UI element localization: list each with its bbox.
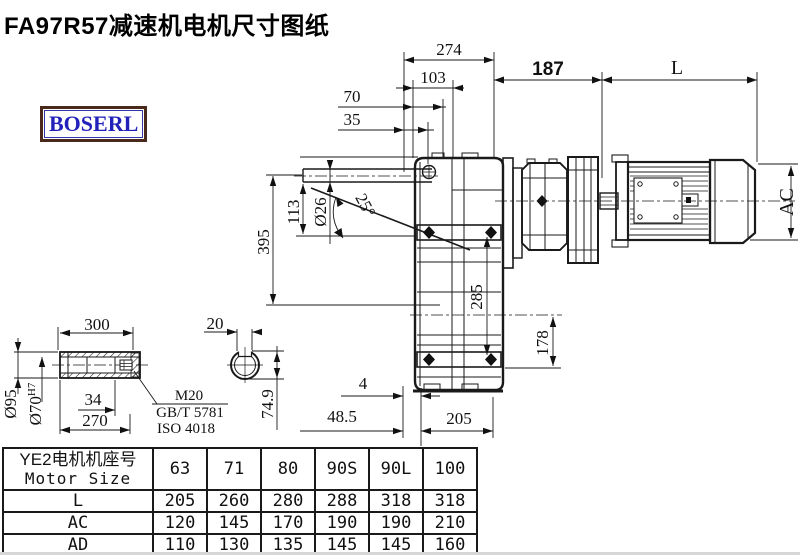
table-header-row: YE2电机机座号 Motor Size 63 71 80 90S 90L 100 [3,448,477,490]
cell-AC-71: 145 [207,512,261,534]
dim-113: 113 [284,200,303,225]
dim-300: 300 [84,315,110,334]
cell-AC-90l: 190 [369,512,423,534]
cell-L-100: 318 [423,490,477,512]
cell-L-71: 260 [207,490,261,512]
cell-AC-100: 210 [423,512,477,534]
cell-L-80: 280 [261,490,315,512]
cell-L-90l: 318 [369,490,423,512]
note-gb5781: GB/T 5781 [156,405,224,421]
extension-lines [14,52,798,446]
cell-AC-63: 120 [153,512,207,534]
table-header-en: Motor Size [4,470,152,488]
dim-395: 395 [254,229,273,255]
dim-270: 270 [82,411,108,430]
col-90l: 90L [369,448,423,490]
dim-AC: AC [776,188,798,216]
col-100: 100 [423,448,477,490]
dim-205: 205 [446,409,472,428]
dim-angle-25: 25° [351,190,379,220]
dim-4: 4 [359,374,368,393]
cell-L-63: 205 [153,490,207,512]
dim-20: 20 [207,314,224,333]
table-row-AC: AC 120 145 170 190 190 210 [3,512,477,534]
table-header-cell: YE2电机机座号 Motor Size [3,448,153,490]
page: FA97R57减速机电机尺寸图纸 BOSERL [0,0,800,555]
dim-48-5: 48.5 [327,407,357,426]
dim-274: 274 [436,40,462,59]
shaft-section [227,347,263,383]
dim-103: 103 [420,68,446,87]
note-m20: M20 [175,388,203,404]
dim-187: 187 [532,59,564,80]
dim-dia26: Ø26 [311,197,330,226]
col-63: 63 [153,448,207,490]
gearbox-hole-marks [423,195,548,366]
table-row-L: L 205 260 280 288 318 318 [3,490,477,512]
cell-AC-90s: 190 [315,512,369,534]
row-label-L: L [3,490,153,512]
dim-285: 285 [467,284,486,310]
col-71: 71 [207,448,261,490]
cell-L-90s: 288 [315,490,369,512]
dim-178: 178 [533,330,552,356]
row-label-AC: AC [3,512,153,534]
note-iso4018: ISO 4018 [157,421,215,437]
dim-35: 35 [344,110,361,129]
col-80: 80 [261,448,315,490]
dim-dia95: Ø95 [1,389,20,418]
dim-74-9: 74.9 [258,389,277,419]
r57-unit [503,157,598,268]
cell-AC-80: 170 [261,512,315,534]
dim-L: L [671,57,683,79]
dim-34: 34 [85,390,103,409]
col-90s: 90S [315,448,369,490]
table-header-cn: YE2电机机座号 [4,450,152,470]
dim-70: 70 [344,87,361,106]
motor-size-table: YE2电机机座号 Motor Size 63 71 80 90S 90L 100… [2,447,478,555]
